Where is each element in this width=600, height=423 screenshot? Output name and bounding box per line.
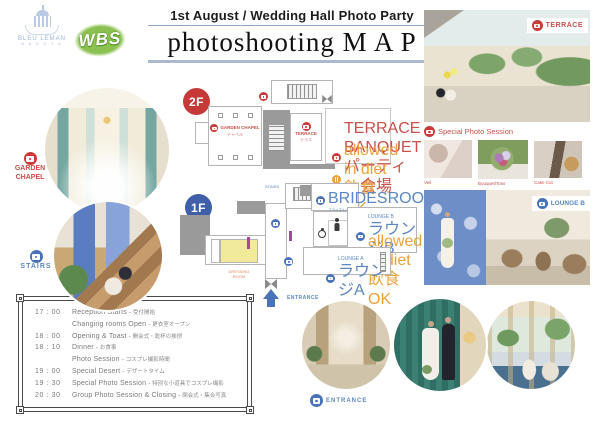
separator: - [96, 345, 98, 351]
schedule-row: 20 : 30 Group Photo Session & Closing - … [35, 391, 243, 403]
frame-corner [16, 294, 24, 302]
schedule-row: 19 : 00 Special Desert - デザートタイム [35, 367, 243, 379]
terrace-photo-label: TERRACE [527, 18, 588, 33]
schedule-item-jp: コスプレ撮影時間 [126, 355, 170, 363]
schedule-rows: 17 : 00 Reception Starts - 受付開始 Changing… [35, 308, 243, 402]
room-label-terrace: TERRACE テラス [291, 122, 321, 142]
lounge-b-photo: LOUNGE B [424, 190, 590, 285]
wheelchair-icon [318, 230, 326, 238]
camera-icon [537, 198, 548, 209]
schedule-row: Changing rooms Open - 更衣室オープン [35, 320, 243, 332]
dressing-room-area [220, 239, 258, 263]
schedule-time: 19 : 30 [35, 380, 72, 387]
event-subtitle: 1st August / Wedding Hall Photo Party [148, 8, 436, 23]
thick-divider [148, 60, 436, 63]
allowed-text: allowed in diet [344, 141, 398, 179]
room-name: BRIDESROOM [328, 189, 437, 208]
schedule-row: 18 : 00 Opening & Toast - 開会式・乾杯の挨拶 [35, 332, 243, 344]
separator: - [122, 357, 124, 363]
schedule-item: Opening & Toast [72, 333, 127, 340]
camera-icon [310, 394, 323, 407]
camera-icon [424, 126, 435, 137]
floor-map-1f: 1F DRESSING ROOM STAIRS BRIDESROOM [175, 183, 420, 298]
entrance-door-icon [265, 279, 277, 289]
schedule-item-jp: デザートタイム [126, 367, 164, 375]
mens-restroom-icon [334, 218, 340, 231]
label-line: GARDEN [15, 165, 45, 174]
chapel-logo-icon [36, 10, 49, 16]
door-icon [322, 95, 332, 103]
label-line: STAIRS [20, 263, 51, 272]
room-label-garden-chapel: GARDEN CHAPEL チャペル [209, 124, 261, 137]
thumb-label-veil: Veil [424, 180, 431, 185]
frame-corner [246, 406, 254, 414]
camera-icon [284, 257, 293, 266]
map-room [195, 122, 209, 144]
camera-icon [271, 219, 280, 228]
label-text: ENTRANCE [326, 398, 367, 404]
entrance-photo-label: ENTRANCE [310, 394, 367, 407]
lounge-b-photo-label: LOUNGE B [532, 196, 590, 211]
camera-icon [302, 122, 311, 131]
separator: - [148, 322, 150, 328]
entrance-hall-photo [300, 299, 392, 391]
camera-icon [30, 250, 43, 263]
schedule-item: Photo Session [72, 356, 120, 363]
entrance-label: ENTRANCE [287, 295, 319, 301]
floor-map-2f: 2F GARDEN CHAPEL チャペル TERR [175, 80, 391, 184]
stairs-photo-label: STAIRS [14, 250, 58, 272]
floor-badge-2f: 2F [183, 88, 210, 115]
thumb-photo-bouquet [478, 140, 528, 179]
separator: - [122, 369, 124, 375]
schedule-item: Group Photo Session & Closing [72, 392, 176, 399]
stairs-hatch [287, 84, 317, 99]
entrance-arrow-stem [267, 299, 275, 307]
schedule-time: 18 : 00 [35, 333, 72, 340]
frame-corner [246, 294, 254, 302]
groom-figure-head [445, 317, 451, 323]
map-wall [237, 201, 265, 214]
schedule-item-jp: 特別な小道具でコスプレ撮影 [152, 379, 224, 387]
schedule-row: Photo Session - コスプレ撮影時間 [35, 355, 243, 367]
schedule-row: 18 : 10 Dinner - お食事 [35, 343, 243, 355]
map-room-terrace-banquet: TERRACE BANQUET パーティー会場 allowed in diet … [325, 108, 391, 164]
schedule-item: Special Photo Session [72, 380, 146, 387]
thumb-photo-cakecut [534, 141, 582, 178]
label-text: TERRACE [546, 22, 583, 29]
bleu-leman-logo: BLEU LEMAN N A G O Y A [14, 10, 70, 46]
map-wall [263, 164, 335, 169]
stairs-photo [52, 200, 164, 312]
schedule-item-jp: 閉会式・集合写真 [182, 391, 226, 399]
map-room-lounge-a: LOUNGE A ラウンジA [303, 247, 391, 275]
terrace-photo: TERRACE [424, 10, 590, 122]
lounge-b-photo-bride-wall [424, 190, 486, 285]
lounge-interior-photo [485, 299, 577, 391]
heading-text: Special Photo Session [438, 127, 513, 136]
special-photo-session-heading: Special Photo Session [424, 126, 513, 137]
thumb-label-cakecut: Cake Cut [534, 180, 553, 185]
schedule-time: 19 : 00 [35, 368, 72, 375]
camera-icon [326, 274, 335, 283]
schedule-item: Dinner [72, 344, 94, 351]
camera-icon [210, 124, 218, 132]
garden-chapel-photo [43, 86, 171, 214]
map-room-terrace: TERRACE テラス [290, 113, 322, 161]
schedule-time: 17 : 00 [35, 309, 72, 316]
bride-figure-head [445, 212, 450, 217]
thin-divider [148, 25, 436, 26]
label-text: LOUNGE B [551, 200, 585, 207]
separator: - [129, 334, 131, 340]
couple-curtain-photo [392, 297, 488, 393]
map-room-garden-chapel: GARDEN CHAPEL チャペル [208, 106, 262, 166]
bouquet [442, 238, 453, 248]
schedule-item-jp: 更衣室オープン [152, 320, 190, 328]
schedule-item-jp: お食事 [100, 343, 117, 351]
schedule-row: 19 : 30 Special Photo Session - 特別な小道具でコ… [35, 379, 243, 391]
bouquet [422, 365, 432, 374]
schedule-item-jp: 開会式・乾杯の挨拶 [133, 332, 183, 340]
brand-subname: N A G O Y A [14, 42, 70, 46]
label-line: CHAPEL [16, 174, 45, 183]
schedule-row: 17 : 00 Reception Starts - 受付開始 [35, 308, 243, 320]
camera-icon [532, 20, 543, 31]
separator: - [178, 393, 180, 399]
camera-icon [259, 92, 268, 101]
schedule-box: 17 : 00 Reception Starts - 受付開始 Changing… [18, 296, 252, 412]
schedule-item-jp: 受付開始 [133, 308, 155, 316]
room-name: GARDEN CHAPEL [220, 125, 259, 131]
map-door-marker [247, 237, 250, 249]
stairs-hatch [268, 124, 285, 152]
frame-corner [16, 406, 24, 414]
schedule-time: 18 : 10 [35, 344, 72, 351]
stairs-label: STAIRS [265, 184, 279, 189]
thumb-photo-veil [424, 140, 472, 178]
groom-figure [442, 324, 455, 380]
page-title: photoshooting M A P [148, 27, 436, 58]
entrance-arrow-icon [263, 289, 279, 299]
schedule-item: Special Desert [72, 368, 120, 375]
garden-chapel-photo-label: GARDEN CHAPEL [6, 152, 54, 183]
photoshooting-map-poster: BLEU LEMAN N A G O Y A WBS 1st August / … [0, 0, 600, 423]
map-room [211, 239, 220, 263]
separator: - [129, 310, 131, 316]
thumb-label-bouquet: Bouquet/Toss [478, 181, 505, 186]
schedule-time: 20 : 30 [35, 392, 72, 399]
separator: - [148, 381, 150, 387]
room-name-jp: テラス [300, 137, 312, 142]
camera-icon [316, 196, 325, 205]
wbs-logo: WBS [71, 20, 129, 60]
map-corridor [265, 203, 287, 279]
label-line: ROOM [233, 274, 245, 279]
bride-figure-head [428, 321, 434, 327]
room-name-jp: チャペル [227, 132, 243, 137]
title-block: 1st August / Wedding Hall Photo Party ph… [148, 8, 436, 63]
map-door-marker [289, 231, 292, 241]
chapel-logo-arc [25, 25, 59, 35]
camera-icon [24, 152, 37, 165]
schedule-item: Changing rooms Open [72, 321, 146, 328]
sofa-hatch [380, 252, 386, 272]
dressing-room-label: DRESSING ROOM [219, 269, 259, 279]
